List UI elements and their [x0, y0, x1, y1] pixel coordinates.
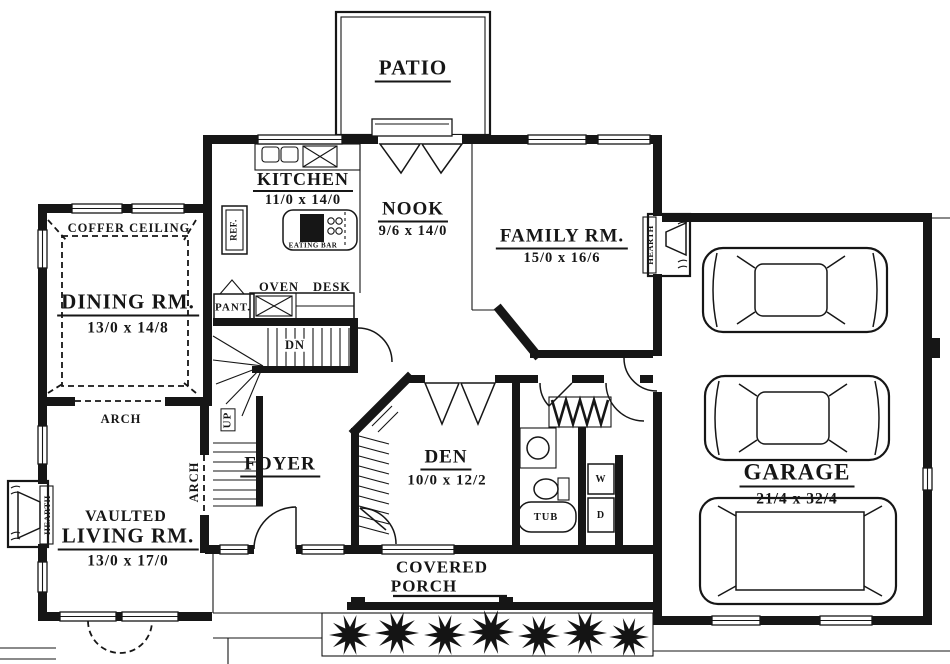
porch-label-line2: PORCH: [391, 578, 457, 595]
foyer-label: FOYER: [240, 455, 320, 478]
living-room-label: LIVING RM.: [58, 526, 199, 551]
nook-dims: 9/6 x 14/0: [379, 224, 448, 239]
den-label: DEN: [420, 448, 471, 471]
floor-plan: PATIO KITCHEN 11/0 x 14/0 EATING BAR REF…: [0, 0, 950, 664]
pantry-label: PANT.: [215, 303, 251, 314]
kitchen-dims: 11/0 x 14/0: [265, 193, 341, 208]
desk-label: DESK: [313, 281, 351, 294]
arch-dining-label: ARCH: [101, 413, 142, 426]
tub-label: TUB: [534, 513, 559, 524]
dining-room-label: DINING RM.: [57, 292, 199, 317]
garage-dims: 21/4 x 32/4: [756, 491, 838, 507]
dryer-label: D: [595, 511, 607, 521]
eating-bar-label: EATING BAR: [289, 243, 338, 250]
stairs-down-label: DN: [283, 339, 307, 352]
stairs-up-label: UP: [221, 409, 236, 432]
washer-label: W: [594, 475, 609, 485]
living-room-dims: 13/0 x 17/0: [87, 553, 169, 569]
porch-label-line1: COVERED: [396, 559, 488, 576]
oven-label: OVEN: [259, 281, 299, 294]
garage-cars: [700, 248, 896, 604]
den-dims: 10/0 x 12/2: [407, 474, 486, 489]
nook-label: NOOK: [378, 200, 448, 223]
dining-room-dims: 13/0 x 14/8: [87, 320, 169, 336]
patio-step: [372, 119, 452, 136]
porch-and-planter: [88, 596, 653, 656]
kitchen-label: KITCHEN: [253, 170, 353, 192]
patio-label: PATIO: [375, 58, 451, 83]
arch-foyer-label: ARCH: [188, 462, 201, 503]
hearth-family-label: HEARTH: [645, 225, 654, 265]
refrigerator-label: REF.: [230, 219, 239, 240]
garage-label: GARAGE: [740, 461, 855, 488]
coffer-ceiling-label: COFFER CEILING: [68, 222, 191, 235]
family-room-dims: 15/0 x 16/6: [523, 251, 600, 266]
hearth-living-label: HEARTH: [42, 495, 51, 535]
family-room-label: FAMILY RM.: [496, 227, 628, 250]
